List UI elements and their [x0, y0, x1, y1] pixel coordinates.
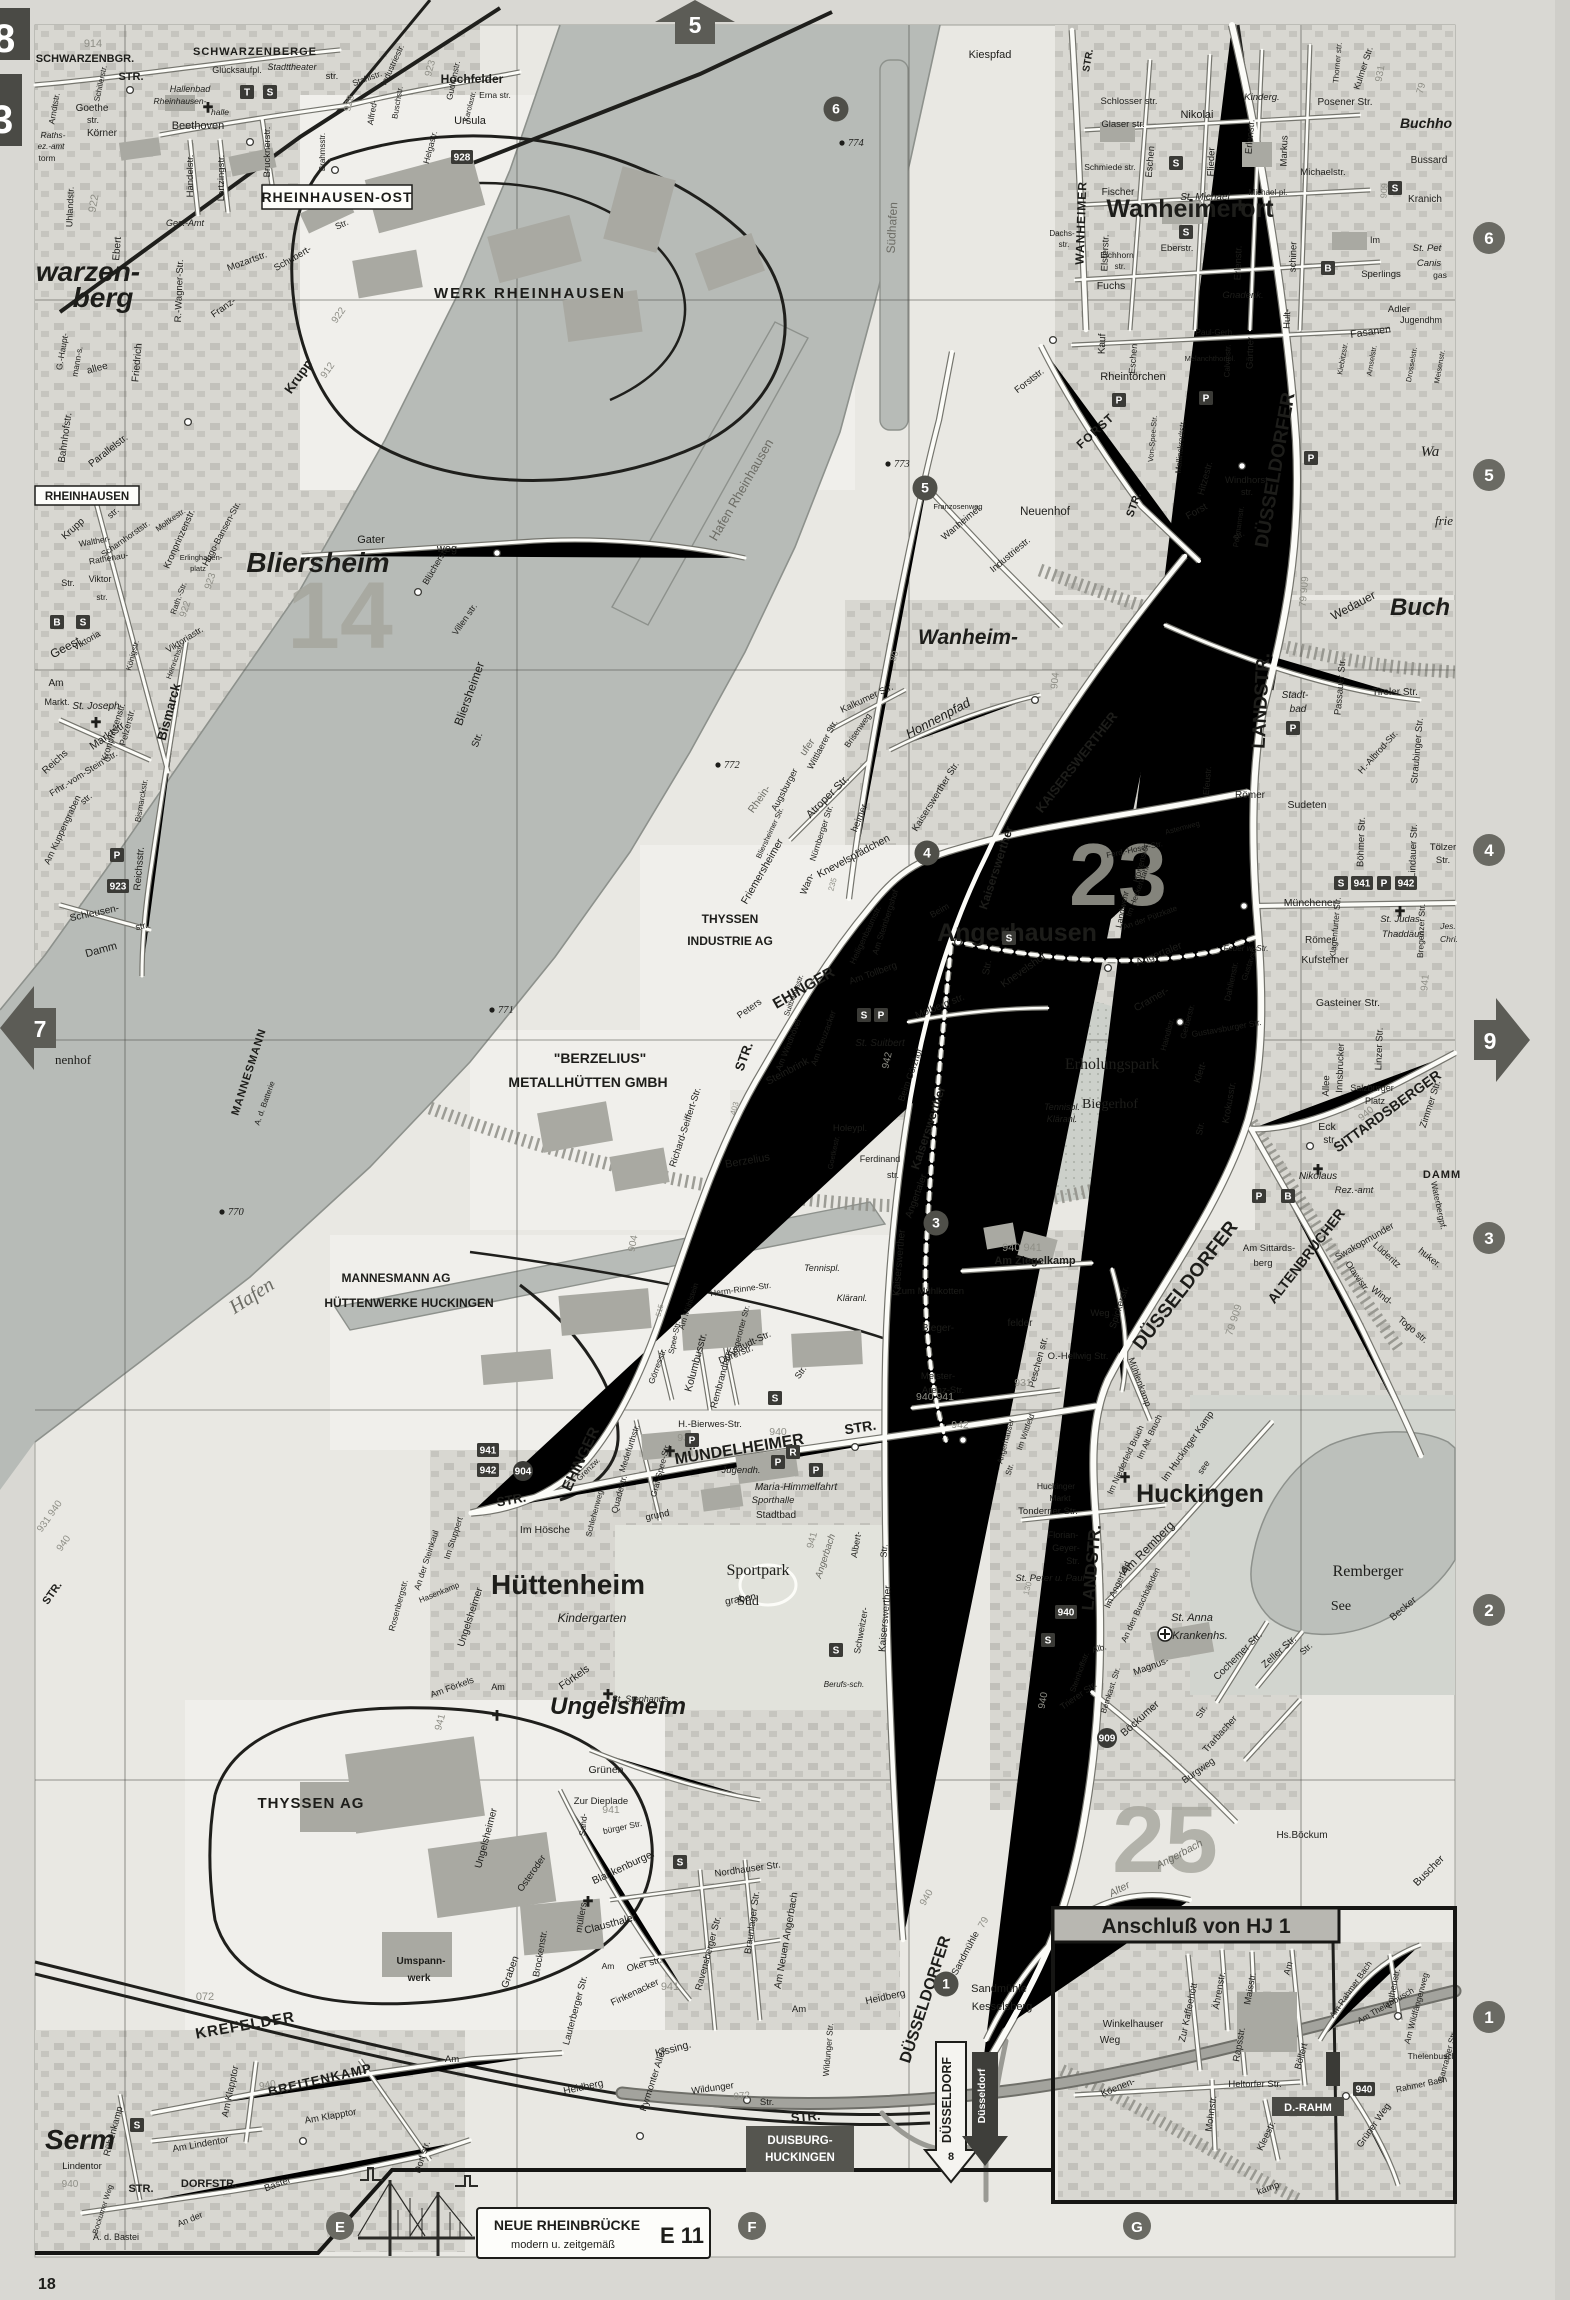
label-thyssen-ag: THYSSEN AG	[258, 1795, 365, 1812]
route-badge-label: B	[53, 618, 60, 629]
street-label: Gärtner	[1244, 337, 1256, 370]
label-mannesmann: MANNESMANN AG	[342, 1271, 451, 1285]
street-label: Chri.	[1440, 934, 1458, 944]
street-label: Str.	[760, 2097, 774, 2108]
street-label: Ges.-Amt	[166, 218, 205, 228]
street-label: Adler	[1388, 304, 1410, 315]
street-label: Buchho	[1400, 115, 1453, 131]
street-label: Gater	[357, 534, 385, 546]
route-badge-P: P	[771, 1455, 785, 1469]
street-label: Sand-	[577, 1813, 589, 1837]
route-badge-label: P	[689, 1436, 696, 1447]
street-label: METALLHÜTTEN GMBH	[508, 1074, 667, 1090]
label-berzelius: "BERZELIUS"	[554, 1050, 647, 1066]
street-label: Sperlings	[1361, 269, 1401, 280]
route-badge-label: S	[1045, 1636, 1052, 1647]
route-badge-label: P	[1290, 724, 1297, 735]
street-label: Glaser str.	[1101, 119, 1144, 130]
route-badge-942: 942	[1395, 876, 1417, 890]
route-badge-label: P	[775, 1458, 782, 1469]
street-label: Allee	[1321, 1075, 1333, 1096]
street-label: Biegerhof	[1082, 1097, 1138, 1112]
street-label: str.	[887, 1170, 899, 1180]
street-label: Tennispl.	[804, 1263, 840, 1273]
street-label: St. Joseph	[72, 701, 120, 712]
route-badge-label: S	[1338, 879, 1345, 890]
street-label: Ebert	[111, 236, 124, 261]
street-label: Rheinhausen-	[154, 96, 207, 106]
route-badge-P: P	[685, 1433, 699, 1447]
route-badge-B: B	[1321, 261, 1335, 275]
row-marker-3: 3	[1473, 1222, 1505, 1254]
street-label: Am	[445, 2054, 459, 2065]
street-label: Römer	[1305, 935, 1336, 946]
route-badge-S: S	[76, 615, 90, 629]
route-badge-label: S	[134, 2121, 141, 2132]
label-suedhafen: Südhafen	[884, 202, 901, 254]
street-label: Tölzer	[1430, 842, 1456, 853]
route-badge-S: S	[1334, 876, 1348, 890]
street-label: str.	[326, 71, 339, 82]
building-block	[382, 1932, 452, 1977]
street-label: Str.	[1066, 1556, 1080, 1566]
row-marker-5: 5	[1473, 459, 1505, 491]
street-label: Hallenbad	[170, 84, 212, 94]
stop-icon	[637, 2133, 644, 2140]
route-badge-label: B	[1324, 264, 1331, 275]
route-badge-label: P	[878, 1011, 885, 1022]
street-label: O.-Hellwig Str.	[1048, 1351, 1109, 1362]
street-label: Meister-	[921, 1371, 955, 1382]
street-label: Am	[792, 2004, 806, 2015]
stop-icon	[1239, 463, 1246, 470]
route-marker-label: 5	[921, 480, 929, 496]
stop-icon	[332, 167, 339, 174]
street-label: Kinderg.	[1244, 92, 1279, 103]
street-label: Michaelstr.	[1300, 167, 1345, 178]
route-badge-P: P	[1377, 876, 1391, 890]
sign-d-rahm-text: D.-RAHM	[1284, 2102, 1332, 2114]
stop-icon	[1105, 965, 1112, 972]
column-marker-label: F	[747, 2219, 756, 2236]
street-label: Nikolai	[1180, 109, 1213, 121]
route-badge-P: P	[1286, 721, 1300, 735]
street-label: HÜTTENWERKE HUCKINGEN	[324, 1295, 493, 1310]
street-label: St. Stephanus	[612, 1694, 669, 1704]
street-label: Holeypl.	[833, 1123, 867, 1134]
street-label: Markus	[1278, 135, 1290, 167]
sign-rheinhausen-text: RHEINHAUSEN	[45, 491, 129, 503]
street-label: Grünen	[588, 1764, 623, 1776]
stop-icon	[1307, 1143, 1314, 1150]
route-badge-label: 941	[480, 1446, 497, 1457]
label-remberger-see: Remberger	[1333, 1563, 1404, 1580]
label-thyssen-industrie-ag: THYSSEN	[702, 912, 759, 926]
stop-icon	[185, 419, 192, 426]
route-badge-S: S	[1179, 225, 1193, 239]
street-label: Erlenstr.	[1232, 245, 1244, 280]
route-badge-S: S	[1388, 181, 1402, 195]
route-badge-P: P	[1199, 391, 1213, 405]
street-label: Erlinghagen-	[180, 553, 223, 562]
street-label: 941	[602, 1804, 620, 1816]
street-label: ez.-amt	[38, 142, 65, 151]
inset-title: Anschluß von HJ 1	[1101, 1915, 1290, 1938]
route-badge-940: 940	[1353, 2082, 1375, 2096]
street-label: bad	[1290, 704, 1307, 715]
row-marker-4: 4	[1473, 834, 1505, 866]
route-badge-P: P	[1304, 451, 1318, 465]
street-label: Sudeten	[1287, 799, 1326, 811]
city-map-sheet: Anschluß von HJ 1 warzen-bergBliersheim1…	[0, 0, 1570, 2300]
corner-tab-bottom-label: 3	[0, 98, 13, 142]
street-label: Lortzingstr.	[216, 155, 227, 201]
street-label: Stadt-	[1282, 690, 1309, 701]
label-st-anna-krankenhaus: St. Anna	[1171, 1612, 1213, 1624]
street-label: A. d. Bastei	[93, 2232, 139, 2242]
street-label: Feuer w. Str.	[1223, 944, 1268, 953]
street-label: St. Suitbert	[855, 1038, 906, 1049]
street-label: Markt.	[44, 697, 69, 707]
street-label: Im	[1370, 235, 1380, 245]
street-label: schiner	[1287, 241, 1299, 272]
street-label: berg	[73, 282, 134, 313]
route-marker-label: 1	[942, 1976, 950, 1992]
hospital-icon	[1158, 1627, 1172, 1641]
street-label: Viktor	[89, 574, 112, 584]
route-badge-label: 928	[454, 153, 471, 164]
route-badge-label: 942	[480, 1466, 497, 1477]
street-label: Zum Mühlkotten	[896, 1286, 964, 1297]
street-label: Tonderner Str.	[1018, 1506, 1078, 1517]
route-badge-label: S	[677, 1858, 684, 1869]
street-label: Am	[49, 678, 64, 689]
sign-rheinhausen-ost-text: RHEINHAUSEN-OST	[261, 189, 412, 205]
street-label: Schlosser str.	[1100, 96, 1157, 107]
street-label: Geyer-	[1052, 1543, 1080, 1553]
street-label: STR.	[128, 2183, 153, 2195]
district-huckingen: Huckingen	[1136, 1480, 1264, 1508]
route-badge-label: R	[789, 1448, 797, 1459]
elevation-spot-label: 770	[228, 1207, 245, 1218]
route-badge-label: 904	[515, 1467, 532, 1478]
street-label: Eberstr.	[1161, 243, 1194, 254]
ad-subtitle: modern u. zeitgemäß	[511, 2239, 615, 2251]
route-badge-label: 941	[1354, 879, 1371, 890]
row-marker-label: 3	[1484, 1229, 1493, 1248]
street-label: Hs.Böckum	[1276, 1830, 1327, 1841]
route-badge-940: 940	[1055, 1605, 1077, 1619]
route-badge-S: S	[857, 1008, 871, 1022]
row-marker-label: 5	[1484, 466, 1493, 485]
route-badge-P: P	[809, 1463, 823, 1477]
route-badge-P: P	[874, 1008, 888, 1022]
route-badge-label: P	[1308, 454, 1315, 465]
street-label: Linzer Str.	[1373, 1027, 1385, 1070]
sign-rheinhausen-ost: RHEINHAUSEN-OST	[261, 185, 412, 209]
street-label: Böhmer Str.	[1355, 817, 1368, 868]
route-badge-941: 941	[477, 1443, 499, 1457]
route-badge-P: P	[1112, 393, 1126, 407]
corner-tab-top-label: 8	[0, 17, 15, 61]
street-label: str.	[96, 592, 107, 602]
street-label: St. Judas	[1380, 914, 1420, 925]
route-marker-label: 6	[832, 101, 840, 117]
street-label: Kesselsberg	[972, 2001, 1033, 2013]
route-badge-label: P	[114, 851, 121, 862]
stop-icon	[852, 1444, 859, 1451]
route-badge-label: P	[813, 1466, 820, 1477]
sign-duisburg-line2: HUCKINGEN	[765, 2152, 835, 2164]
stop-icon	[960, 1437, 967, 1444]
row-marker-label: 1	[1484, 2008, 1493, 2027]
street-label: halle	[211, 107, 229, 117]
route-badge-label: P	[1203, 394, 1210, 405]
sign-duesseldorf-arrow-text: Düsseldorf	[976, 2068, 988, 2123]
street-label: Str.	[878, 1544, 889, 1558]
route-badge-S: S	[263, 85, 277, 99]
route-badge-label: S	[772, 1394, 779, 1405]
street-label: Uhlandstr.	[64, 186, 75, 227]
street-label: 941	[1419, 974, 1431, 992]
street-label: Wa	[1421, 444, 1440, 460]
route-marker-4: 4	[915, 841, 940, 866]
route-badge-label: S	[267, 88, 274, 99]
route-badge-label: S	[861, 1011, 868, 1022]
elevation-spot-label: 771	[498, 1005, 514, 1016]
street-label: Kindergarten	[558, 1611, 627, 1625]
sign-duesseldorf-text: DÜSSELDORF	[939, 2057, 954, 2143]
street-label: Beethoven	[172, 120, 225, 132]
street-label: Fuchs	[1097, 280, 1126, 292]
route-badge-label: 909	[1099, 1734, 1116, 1745]
street-label: H.-Bierwes-Str.	[678, 1419, 742, 1430]
street-label: Kiespfad	[969, 49, 1012, 61]
street-label: Str.	[61, 578, 75, 588]
route-badge-label: S	[1173, 159, 1180, 170]
street-label: Eichhorn	[1100, 250, 1134, 260]
page-edge-shadow	[1555, 0, 1570, 2300]
route-badge-904: 904	[513, 1461, 533, 1481]
street-label: Am	[602, 1961, 615, 1971]
elevation-spot-label: 774	[848, 138, 865, 149]
elevation-spot-label: 772	[724, 760, 741, 771]
street-label: Berufs-sch.	[824, 1680, 864, 1689]
arrow-left-label: 7	[34, 1016, 47, 1042]
label-werk-rheinhausen: WERK RHEINHAUSEN	[434, 285, 626, 302]
route-marker-3: 3	[924, 1211, 949, 1236]
street-label: SCHWARZENBERGE	[193, 46, 317, 58]
street-label: Maria-Himmelfahrt	[755, 1482, 838, 1493]
street-label: Dachs-	[1049, 229, 1075, 238]
street-label: Händelstr.	[185, 155, 196, 198]
street-label: STR.	[790, 2108, 821, 2126]
route-badge-928: 928	[451, 150, 473, 164]
street-label: Gasteiner Str.	[1316, 997, 1380, 1009]
route-badge-941: 941	[1351, 876, 1373, 890]
street-label: Lindentor	[62, 2161, 102, 2172]
street-label: Kläranl.	[837, 1293, 868, 1303]
street-label: See	[1331, 1599, 1351, 1614]
street-label: STR.	[118, 71, 143, 83]
route-badge-label: S	[1392, 184, 1399, 195]
route-badge-R: R	[786, 1445, 800, 1459]
street-label: SCHWARZENBGR.	[36, 53, 134, 65]
street-label: Am	[491, 1682, 505, 1692]
route-badge-S: S	[130, 2118, 144, 2132]
street-label: Nikolaus	[1299, 1171, 1337, 1182]
route-badge-label: 942	[1398, 879, 1415, 890]
route-marker-1: 1	[934, 1972, 959, 1997]
route-badge-P: P	[1252, 1189, 1266, 1203]
street-label: torm	[39, 153, 56, 163]
street-label: Salzburger	[1350, 1083, 1394, 1093]
street-label: 940	[769, 1426, 787, 1438]
street-label: 072	[733, 2090, 751, 2102]
label-erholungspark: Erholungspark	[1065, 1056, 1159, 1073]
street-label: 914	[84, 38, 102, 50]
building-block	[1332, 232, 1367, 250]
stop-icon	[415, 589, 422, 596]
street-label: Jugendhm	[1400, 315, 1442, 325]
stop-icon	[1395, 2013, 1402, 2020]
atlas-page: Anschluß von HJ 1 warzen-bergBliersheim1…	[0, 0, 1570, 2300]
stop-icon	[1050, 337, 1057, 344]
street-label: Jugendh.	[720, 1465, 760, 1476]
column-marker-label: E	[335, 2219, 345, 2236]
street-label: Jes.	[1439, 921, 1456, 931]
route-badge-S: S	[1002, 931, 1016, 945]
street-label: Bussard	[1411, 155, 1448, 166]
street-label: Flieder	[1205, 147, 1217, 176]
stop-icon	[127, 87, 134, 94]
street-label: Huckinger	[1037, 1481, 1075, 1491]
district-number-25: 25	[1112, 1787, 1218, 1893]
street-label: Weg	[1100, 2035, 1120, 2046]
street-label: str.	[1115, 262, 1126, 271]
route-badge-label: P	[1381, 879, 1388, 890]
street-label: St. Michael	[1180, 192, 1230, 203]
page-number: 18	[38, 2276, 56, 2293]
route-badge-label: P	[1116, 396, 1123, 407]
street-label: Markt	[1049, 1493, 1071, 1503]
street-label: Franzosenweg	[933, 502, 982, 511]
sign-d-rahm: D.-RAHM	[1272, 2097, 1344, 2116]
stop-icon	[247, 139, 254, 146]
route-badge-label: S	[833, 1646, 840, 1657]
stop-icon	[1241, 903, 1248, 910]
street-label: Neuenhof	[1020, 506, 1071, 518]
street-label: Körner	[87, 128, 118, 139]
street-label: str.	[1241, 487, 1253, 497]
street-label: Am Sittards-	[1243, 1243, 1295, 1254]
street-label: 942	[951, 1419, 969, 1431]
row-marker-2: 2	[1473, 1594, 1505, 1626]
route-badge-923: 923	[107, 879, 129, 893]
street-label: Calvinstr.	[1222, 344, 1232, 377]
street-label: Krankenhs.	[1172, 1630, 1228, 1642]
street-label: 072	[196, 1991, 214, 2003]
route-badge-S: S	[673, 1855, 687, 1869]
street-label: Ferdinand	[860, 1154, 901, 1164]
route-marker-6: 6	[824, 97, 849, 122]
street-label: Paul-Gerh.	[1196, 328, 1235, 337]
street-label: Innsbrucker	[1334, 1043, 1347, 1093]
route-marker-label: 4	[923, 845, 931, 861]
street-label: Schmiede str.	[1084, 162, 1136, 172]
stop-icon	[494, 550, 501, 557]
street-label: Zur Dieplade	[574, 1796, 628, 1807]
arrow-up-label: 5	[689, 12, 702, 38]
street-label: Canis	[1417, 258, 1442, 269]
route-badge-T: T	[240, 85, 254, 99]
route-badge-label: S	[1006, 934, 1013, 945]
street-label: Str.	[1436, 855, 1450, 866]
route-badge-label: T	[244, 88, 250, 99]
street-label: 904	[1049, 672, 1061, 690]
street-label: Münchener	[1284, 897, 1337, 909]
route-badge-942: 942	[477, 1463, 499, 1477]
street-label: Sandmühle	[971, 1983, 1027, 1995]
row-marker-label: 2	[1484, 1601, 1493, 1620]
building-block	[481, 1349, 553, 1385]
street-label: str.	[1059, 240, 1070, 249]
street-label: Im Hösche	[520, 1524, 570, 1536]
building-block	[558, 1288, 651, 1336]
route-badge-label: S	[80, 618, 87, 629]
route-marker-label: 3	[932, 1215, 940, 1231]
route-badge-S: S	[1169, 156, 1183, 170]
street-label: Weg	[1090, 1308, 1109, 1319]
district-wanheim: Wanheim-	[918, 626, 1018, 649]
street-label: 940 941	[1002, 1242, 1042, 1254]
street-label: Brahmsstr.	[318, 133, 327, 171]
street-label: Am Ziegelkamp	[994, 1255, 1076, 1267]
street-label: Stadtbad	[756, 1510, 796, 1521]
street-label: gas	[1433, 270, 1447, 280]
sign-duesseldorf-num: 8	[948, 2151, 954, 2163]
column-marker-F: F	[738, 2212, 766, 2240]
street-label: 909	[1378, 183, 1389, 199]
route-badge-B: B	[50, 615, 64, 629]
street-label: Glücksaufpl.	[212, 65, 262, 75]
street-label: Posener Str.	[1317, 97, 1372, 108]
street-label: WANHEIMER	[1073, 181, 1090, 265]
route-badge-label: P	[1256, 1192, 1263, 1203]
street-label: felder	[1007, 1318, 1033, 1329]
street-label: Erna str.	[479, 90, 511, 100]
route-badge-label: S	[1183, 228, 1190, 239]
route-badge-909: 909	[1097, 1728, 1117, 1748]
route-badge-S: S	[829, 1643, 843, 1657]
sign-duisburg-line1: DUISBURG-	[767, 2135, 832, 2147]
street-label: frie	[1435, 513, 1453, 528]
street-label: 940 941	[916, 1391, 954, 1403]
street-label: Michael-pl.	[1249, 188, 1288, 197]
elevation-spot-label: 773	[894, 459, 910, 470]
street-label: nenhof	[55, 1052, 92, 1067]
route-badge-label: 940	[1058, 1608, 1075, 1619]
route-badge-S: S	[1041, 1633, 1055, 1647]
row-marker-1: 1	[1473, 2001, 1505, 2033]
street-label: str.	[87, 115, 99, 125]
row-marker-6: 6	[1473, 222, 1505, 254]
street-label: Goethe	[76, 103, 109, 114]
route-badge-label: 940	[1356, 2085, 1373, 2096]
street-label: berg	[1253, 1258, 1272, 1269]
street-label: Gnadenk.	[1222, 290, 1263, 301]
route-badge-S: S	[768, 1391, 782, 1405]
